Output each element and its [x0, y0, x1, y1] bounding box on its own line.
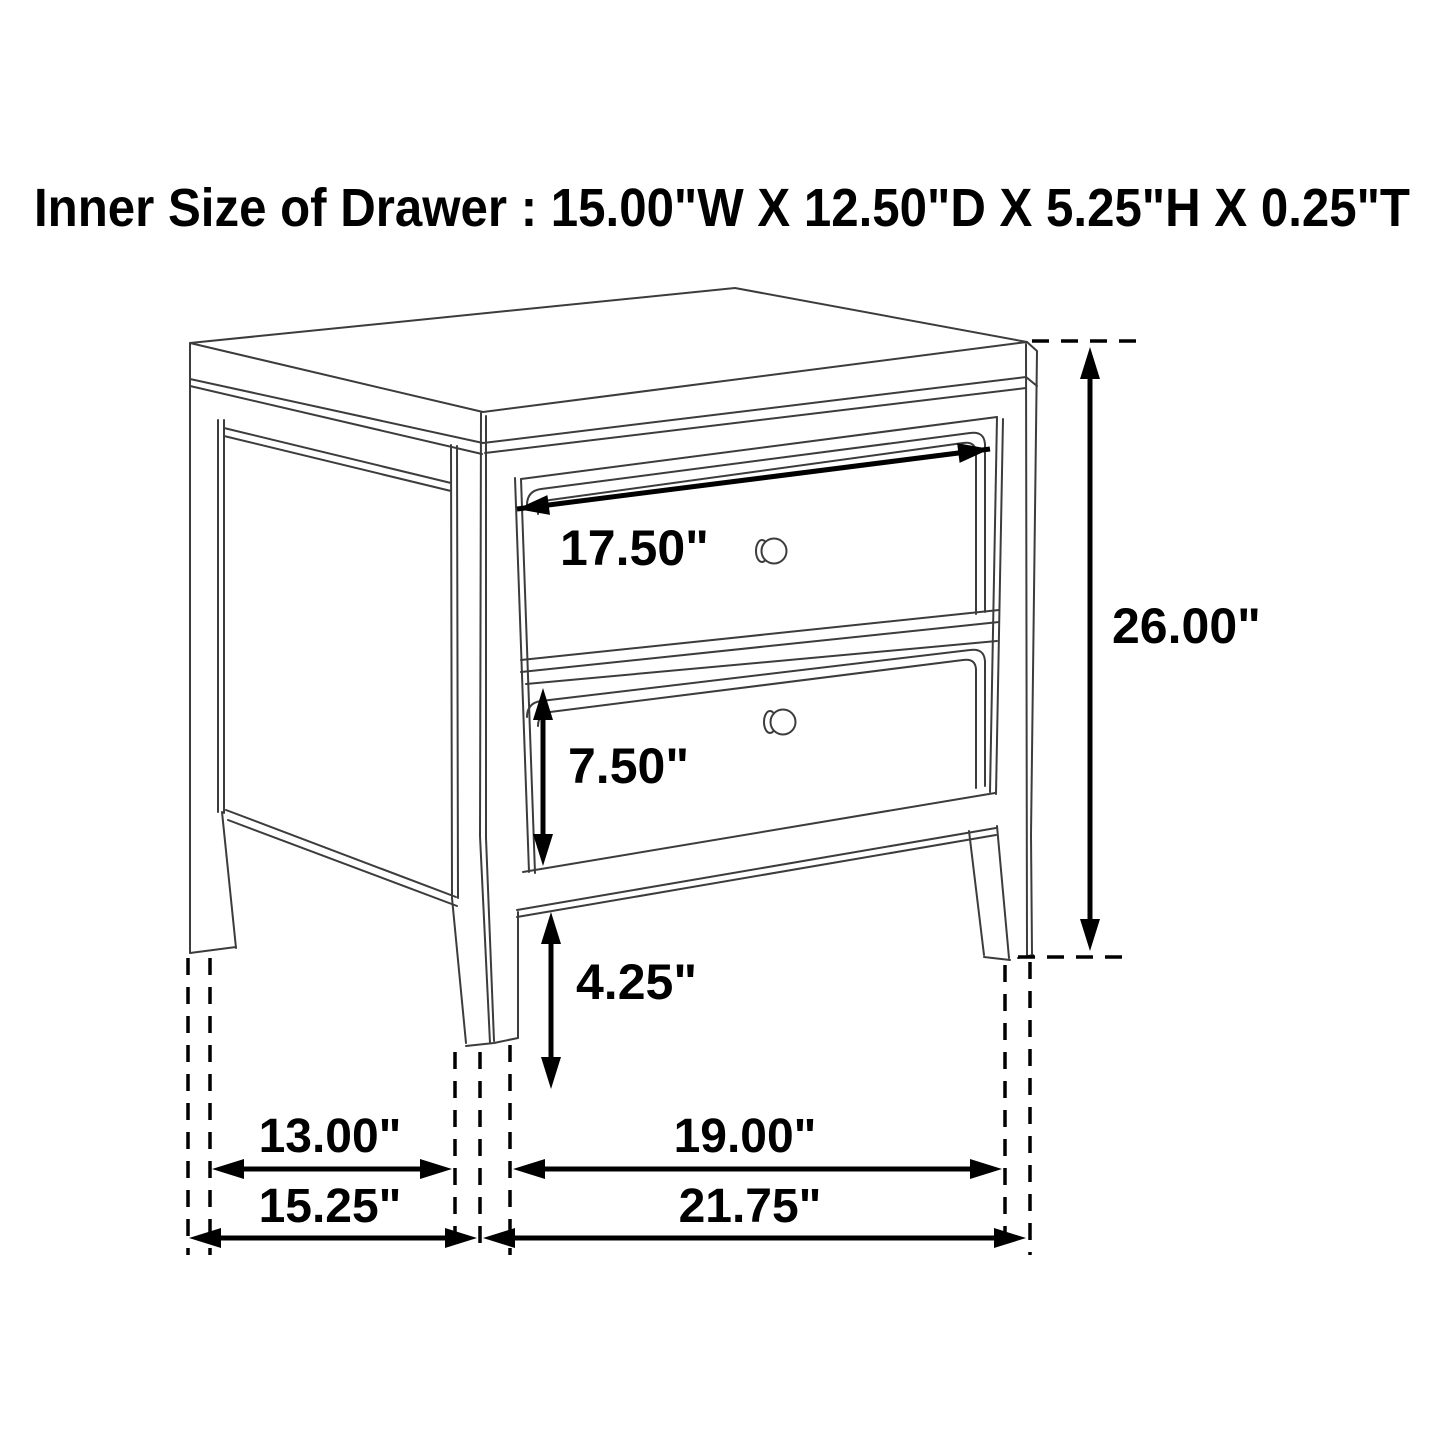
dimension-overall-width: 21.75" — [483, 1180, 1026, 1248]
top-surface — [190, 288, 1027, 412]
left-stile-inner-edge — [515, 478, 535, 873]
side-panel-top-lines — [224, 428, 451, 491]
dimension-drawer-width: 17.50" — [517, 443, 990, 576]
arrowhead-up-icon — [541, 912, 561, 944]
dimension-front-leg-spacing: 19.00" — [513, 1110, 1002, 1179]
dimension-side-leg-spacing: 13.00" — [212, 1110, 452, 1179]
dimension-diagram-page: Inner Size of Drawer : 15.00"W X 12.50"D… — [0, 0, 1445, 1445]
page-title: Inner Size of Drawer : 15.00"W X 12.50"D… — [34, 178, 1410, 238]
cabinet-top — [190, 288, 1037, 956]
arrowhead-up-icon — [533, 688, 553, 720]
top-drawer-knob-icon — [762, 539, 787, 564]
dim-label-drawer-front-height: 7.50" — [568, 738, 689, 794]
right-stile-inner-edge — [990, 417, 1003, 794]
diagram-canvas: Inner Size of Drawer : 15.00"W X 12.50"D… — [0, 0, 1445, 1445]
back-left-leg — [190, 812, 236, 953]
dim-label-side-leg-spacing: 13.00" — [259, 1110, 402, 1163]
arrowhead-left-icon — [483, 1228, 515, 1248]
top-edge-band — [190, 377, 1026, 443]
arrowhead-down-icon — [1080, 919, 1100, 951]
arrowhead-left-icon — [189, 1228, 221, 1248]
front-right-leg — [969, 826, 1010, 960]
dim-label-front-leg-spacing: 19.00" — [674, 1110, 817, 1163]
dim-label-drawer-width: 17.50" — [560, 520, 709, 576]
back-right-leg — [1018, 835, 1033, 958]
dim-label-overall-height: 26.00" — [1112, 598, 1261, 654]
bottom-drawer-knob-icon — [771, 710, 796, 735]
dim-label-overall-width: 21.75" — [679, 1180, 822, 1233]
arrowhead-down-icon — [533, 834, 553, 866]
front-frame — [515, 417, 1003, 917]
legs — [190, 812, 1033, 1046]
dimension-overall-depth: 15.25" — [189, 1180, 477, 1248]
arrowhead-right-icon — [970, 1159, 1002, 1179]
dimension-drawer-front-height: 7.50" — [533, 688, 689, 866]
front-stile-back-edge — [451, 445, 458, 898]
arrowhead-left-icon — [212, 1159, 244, 1179]
dimension-overall-height: 26.00" — [1080, 347, 1261, 951]
dimension-bottom-clearance: 4.25" — [541, 912, 697, 1089]
dim-line — [517, 449, 990, 509]
arrowhead-down-icon — [541, 1057, 561, 1089]
arrowhead-up-icon — [1080, 347, 1100, 379]
back-stile-inner-lines — [218, 420, 224, 813]
arrowhead-left-icon — [513, 1159, 545, 1179]
arrowhead-right-icon — [994, 1228, 1026, 1248]
nightstand-drawing — [190, 288, 1037, 1046]
arrowhead-right-icon — [420, 1159, 452, 1179]
side-panel-bottom-rail — [226, 810, 457, 906]
front-left-leg — [452, 836, 518, 1046]
dim-label-bottom-clearance: 4.25" — [576, 954, 697, 1010]
right-back-corner-edge — [1026, 344, 1027, 956]
bottom-rail — [517, 793, 996, 917]
front-left-corner-edge — [480, 413, 486, 838]
arrowhead-right-icon — [445, 1228, 477, 1248]
dim-label-overall-depth: 15.25" — [259, 1180, 402, 1233]
